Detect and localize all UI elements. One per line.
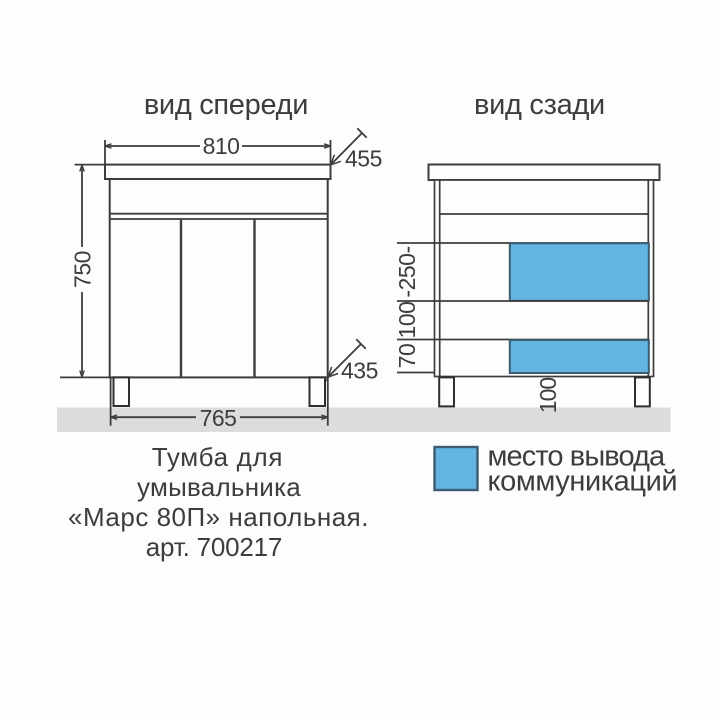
svg-text:«Марс 80П» напольная.: «Марс 80П» напольная. <box>68 502 369 532</box>
svg-text:арт. 700217: арт. 700217 <box>146 532 282 562</box>
svg-text:вид спереди: вид спереди <box>144 89 308 121</box>
svg-text:455: 455 <box>345 146 382 172</box>
svg-text:умывальника: умывальника <box>137 472 301 502</box>
svg-text:100: 100 <box>394 302 420 339</box>
svg-text:Тумба для: Тумба для <box>152 442 283 472</box>
svg-text:100: 100 <box>535 378 561 414</box>
svg-text:750: 750 <box>70 251 96 288</box>
svg-text:70: 70 <box>394 344 420 369</box>
svg-text:765: 765 <box>200 405 237 431</box>
svg-text:вид сзади: вид сзади <box>474 89 605 121</box>
svg-text:435: 435 <box>341 358 378 384</box>
svg-text:810: 810 <box>203 133 240 159</box>
svg-text:-250-: -250- <box>394 246 420 297</box>
svg-text:коммуникаций: коммуникаций <box>488 466 678 498</box>
